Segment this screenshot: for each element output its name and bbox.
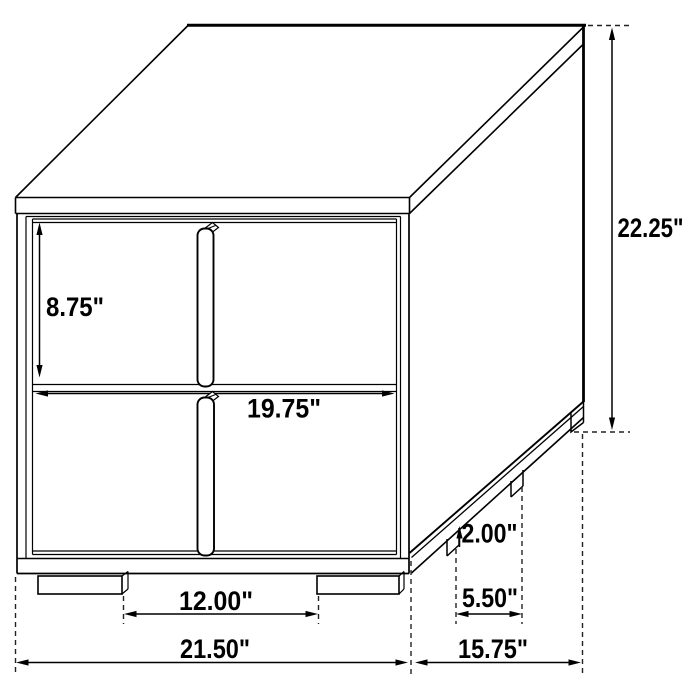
arrowhead-left [16,659,29,665]
dim-overall-height: 22.25" [609,28,684,431]
front-foot-spacing-label: 12.00" [179,586,253,616]
arrowhead-left [124,611,137,617]
side-foot-spacing-label: 5.50" [462,583,518,613]
top-slab [16,25,587,213]
overall-height-label: 22.25" [618,213,684,243]
arrowhead-down [609,418,615,431]
extension-lines [16,26,631,677]
dim-overall-depth: 15.75" [415,634,581,666]
arrowhead-right [396,659,409,665]
foot-height-label: 2.00" [462,519,518,549]
cabinet-right-side [410,26,584,574]
dim-overall-width: 21.50" [16,634,408,666]
top-drawer-handle [198,223,219,387]
dim-drawer-height: 8.75" [36,223,104,378]
arrowhead-down [36,365,42,378]
arrowhead-left [415,659,428,665]
front-foot-right [317,572,404,595]
front-foot-left [38,572,128,595]
overall-depth-label: 15.75" [458,634,528,664]
drawer-handles [198,223,219,556]
dim-front-foot-spacing: 12.00" [124,586,318,617]
nightstand-dimension-diagram: 19.75" 8.75" 22 [0,0,700,700]
arrowhead-right [569,659,582,665]
dim-side-foot-spacing: 5.50" [456,583,522,617]
arrowhead-up [36,223,42,236]
arrowhead-up [609,28,615,41]
dim-foot-height: 2.00" [456,519,517,549]
bottom-drawer-handle [198,392,219,556]
arrowhead-right [306,611,319,617]
drawer-width-label: 19.75" [247,394,321,424]
overall-width-label: 21.50" [180,634,250,664]
diagram-canvas: 19.75" 8.75" 22 [0,0,700,700]
drawer-height-label: 8.75" [46,292,104,322]
